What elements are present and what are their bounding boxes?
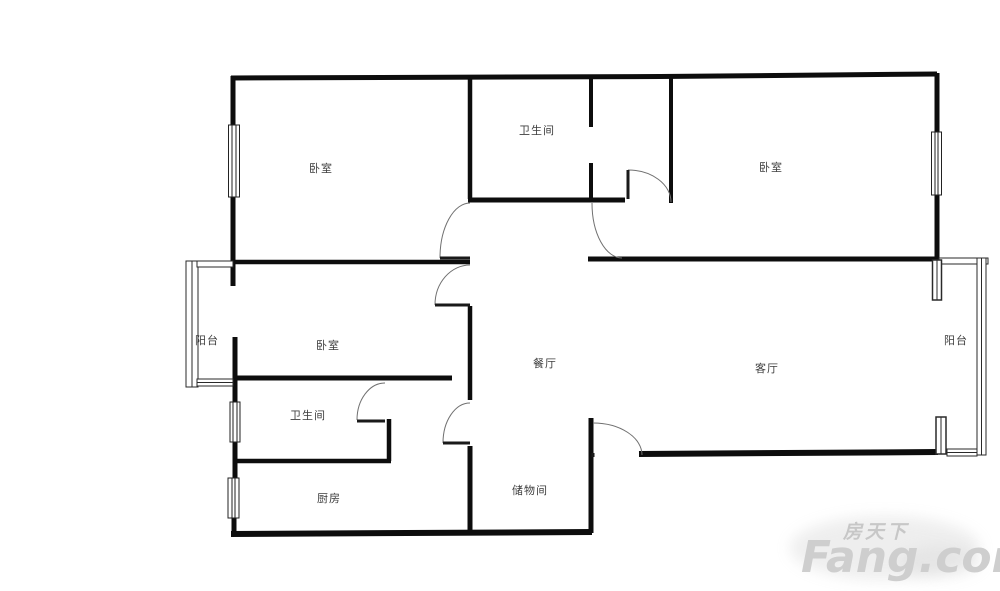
label-bedroom-top-left: 卧室 (309, 161, 333, 175)
floor-plan-image: 卧室 卫生间 卧室 阳台 卧室 餐厅 客厅 阳台 卫生间 厨房 储物间 房天下 … (0, 0, 1000, 591)
window-bathroom-lower (230, 402, 240, 442)
background (0, 0, 1000, 591)
wall-bottom-living (639, 452, 938, 454)
watermark-text-en: Fang.com (801, 532, 1000, 583)
label-storage: 储物间 (512, 483, 548, 497)
wall-bottom-left (231, 532, 592, 534)
label-bathroom-lower: 卫生间 (290, 408, 326, 422)
label-bedroom-middle: 卧室 (316, 338, 340, 352)
window-bedroom-top-left (229, 125, 240, 197)
label-kitchen: 厨房 (317, 492, 341, 505)
label-bedroom-top-right: 卧室 (759, 160, 783, 174)
label-dining: 餐厅 (533, 356, 557, 370)
floor-plan-svg: 卧室 卫生间 卧室 阳台 卧室 餐厅 客厅 阳台 卫生间 厨房 储物间 房天下 … (0, 0, 1000, 591)
label-living: 客厅 (755, 361, 779, 375)
label-balcony-left: 阳台 (195, 333, 219, 347)
window-bedroom-top-right (932, 132, 942, 195)
label-bathroom-top: 卫生间 (519, 123, 555, 137)
label-balcony-right: 阳台 (944, 333, 968, 347)
window-kitchen (228, 478, 239, 518)
